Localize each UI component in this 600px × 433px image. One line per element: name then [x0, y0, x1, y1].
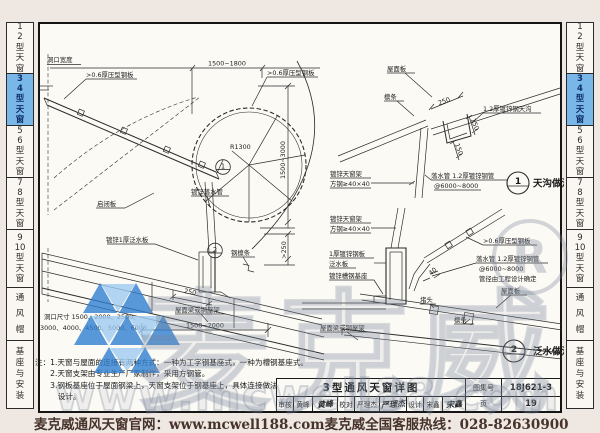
reviewer-label: 审核: [277, 397, 294, 411]
tab-label: 7 8 型 天 窗: [576, 178, 585, 230]
tab-type-3-4[interactable]: 3 4 型 天 窗: [6, 73, 34, 125]
checker-label: 校对: [338, 397, 355, 411]
drawing-sheet: 洞口宽度 >0.6厚压型钢板 1500~1800 >0.6厚压型钢板 R1300…: [38, 22, 562, 413]
dim-opening-sizes-2: 3000、4000、4500、5000、6000: [40, 324, 147, 332]
label-galv-plate: 1厚镀锌钢板: [329, 249, 366, 258]
checker-name: 严理杰: [355, 397, 380, 411]
label-downpipe: 镀锌落水管: [191, 187, 223, 196]
dim-opening-sizes-1: 洞口尺寸 1500、2000、2500、: [44, 312, 140, 321]
detail-2-number: 2: [511, 345, 517, 355]
tab-type-1-2[interactable]: 1 2 型 天 窗: [6, 22, 34, 73]
label-pipe-spacing: @6000~8000: [479, 265, 523, 273]
label-steel-sheet: >0.6厚压型钢板: [86, 70, 134, 79]
checker-signature: 严理杰: [380, 397, 407, 411]
label-purlin: 檩条: [454, 315, 467, 324]
tab-label: 9 10 型 天 窗: [15, 233, 26, 285]
tab-label: 9 10 型 天 窗: [575, 233, 586, 285]
dim-250: 250: [183, 287, 197, 297]
tab-type-1-2[interactable]: 1 2 型 天 窗: [566, 22, 594, 73]
designer-signature: 宋鑫: [443, 397, 465, 411]
page-number: 19: [502, 397, 560, 411]
label-roof-panel: 屋面板: [501, 286, 521, 295]
tab-type-3-4[interactable]: 3 4 型 天 窗: [566, 73, 594, 125]
dim-150: 150: [453, 142, 465, 156]
label-square-steel: 方钢≥40×40: [330, 224, 370, 233]
footer-hotline: 麦克威全国客服热线：028-82630900: [325, 413, 569, 433]
label-opening-width: 洞口宽度: [47, 55, 73, 64]
label-opening-panel: 启闭板: [97, 199, 117, 208]
atlas-no-label: 图集号: [466, 379, 502, 396]
reviewer-signature: 黄峰: [313, 397, 338, 411]
title-block-left: 3型通风天窗详图 审核 黄峰 黄峰 校对 严理杰 严理杰 设计 宋鑫 宋鑫: [277, 379, 465, 411]
tab-type-5-6[interactable]: 5 6 型 天 窗: [6, 125, 34, 177]
dim-1500-1800: 1500~1800: [208, 60, 246, 68]
left-tab-bar: 1 2 型 天 窗 3 4 型 天 窗 5 6 型 天 窗 7 8 型 天 窗 …: [6, 22, 34, 409]
tab-type-7-8[interactable]: 7 8 型 天 窗: [6, 177, 34, 229]
tab-vent-cap[interactable]: 通 风 帽: [6, 287, 34, 340]
label-flashing-plate: 镀锌1厚泛水板: [106, 235, 149, 244]
label-downspout-pipe: 落水管 1.2厚镀锌钢管: [431, 171, 494, 180]
tab-label: 1 2 型 天 窗: [16, 22, 25, 74]
dim-1500-3000: 1500~3000: [279, 141, 287, 179]
tab-label: 3 4 型 天 窗: [16, 74, 25, 126]
footer-official-site: 麦克威通风天窗官网：www.mcwell188.com: [34, 413, 325, 433]
tab-type-7-8[interactable]: 7 8 型 天 窗: [566, 177, 594, 229]
tab-label: 1 2 型 天 窗: [576, 22, 585, 74]
tab-type-9-10[interactable]: 9 10 型 天 窗: [6, 229, 34, 287]
title-block: 3型通风天窗详图 审核 黄峰 黄峰 校对 严理杰 严理杰 设计 宋鑫 宋鑫 图集…: [276, 378, 560, 411]
signature-row: 审核 黄峰 黄峰 校对 严理杰 严理杰 设计 宋鑫 宋鑫: [277, 396, 465, 411]
dim-gt-250: >250: [280, 241, 288, 259]
label-channel-base: 镀锌槽钢基座: [329, 271, 368, 280]
label-flashing: 泛水板: [329, 259, 349, 268]
atlas-page: 1 2 型 天 窗 3 4 型 天 窗 5 6 型 天 窗 7 8 型 天 窗 …: [0, 0, 600, 433]
tab-label: 5 6 型 天 窗: [576, 126, 585, 178]
tab-label: 通 风 帽: [576, 290, 585, 338]
label-pipe-spacing: @6000~8000: [434, 182, 478, 190]
label-pipe-diameter-note: 管径由工程设计确定: [479, 274, 537, 283]
dim-1500-2000: 1500~2000: [186, 322, 224, 330]
right-tab-bar: 1 2 型 天 窗 3 4 型 天 窗 5 6 型 天 窗 7 8 型 天 窗 …: [566, 22, 594, 409]
designer-label: 设计: [407, 397, 424, 411]
tab-type-5-6[interactable]: 5 6 型 天 窗: [566, 125, 594, 177]
dim-40: 40: [427, 266, 438, 277]
tab-label: 5 6 型 天 窗: [16, 126, 25, 178]
tab-label: 基 座 与 安 装: [576, 347, 585, 402]
label-skylight-frame: 镀锌天窗架: [330, 169, 363, 178]
footer-bar: 麦克威通风天窗官网：www.mcwell188.com 麦克威全国客服热线：02…: [0, 413, 600, 433]
tab-label: 7 8 型 天 窗: [16, 178, 25, 230]
designer-name: 宋鑫: [424, 397, 443, 411]
label-purlin: 檩条: [384, 92, 397, 101]
label-steel-purlin: 钢檩条: [231, 248, 251, 257]
ref-mark-1: 1: [221, 163, 225, 171]
sheet-title: 3型通风天窗详图: [277, 379, 465, 396]
tab-label: 3 4 型 天 窗: [576, 74, 585, 126]
tab-base-install[interactable]: 基 座 与 安 装: [6, 340, 34, 409]
detail-1-number: 1: [515, 177, 521, 187]
dim-250: 250: [437, 95, 451, 107]
label-square-steel: 方钢≥40×40: [330, 179, 370, 188]
tab-vent-cap[interactable]: 通 风 帽: [566, 287, 594, 340]
label-skylight-frame: 镀锌天窗架: [330, 214, 363, 223]
label-downspout-pipe: 落水管 1.2厚镀锌钢管: [476, 254, 539, 263]
tab-label: 通 风 帽: [16, 290, 25, 338]
page-label: 页: [466, 397, 502, 411]
tab-type-9-10[interactable]: 9 10 型 天 窗: [566, 229, 594, 287]
title-block-right: 图集号 18J621-3 页 19: [465, 379, 560, 411]
dim-150: 150: [469, 117, 481, 131]
ref-mark-2: 2: [213, 246, 217, 254]
label-gutter: 1.2厚镀锌钢天沟: [483, 104, 532, 113]
reviewer-name: 黄峰: [294, 397, 313, 411]
label-plug: 堵头: [420, 295, 433, 304]
label-roof-beam: 屋面梁或钢屋架: [320, 323, 365, 332]
tab-label: 基 座 与 安 装: [16, 347, 25, 402]
detail-1-title: 天沟做法: [533, 178, 564, 190]
label-roof-beam: 屋面梁或钢屋架: [175, 305, 220, 314]
atlas-no-value: 18J621-3: [502, 379, 560, 396]
label-roof-panel: 屋面板: [387, 64, 407, 73]
label-steel-sheet: >0.6厚压型钢板: [483, 236, 531, 245]
label-steel-sheet: >0.6厚压型钢板: [267, 68, 315, 77]
dim-r1300: R1300: [230, 143, 251, 151]
detail-2-title: 泛水做法: [533, 346, 564, 358]
tab-base-install[interactable]: 基 座 与 安 装: [566, 340, 594, 409]
